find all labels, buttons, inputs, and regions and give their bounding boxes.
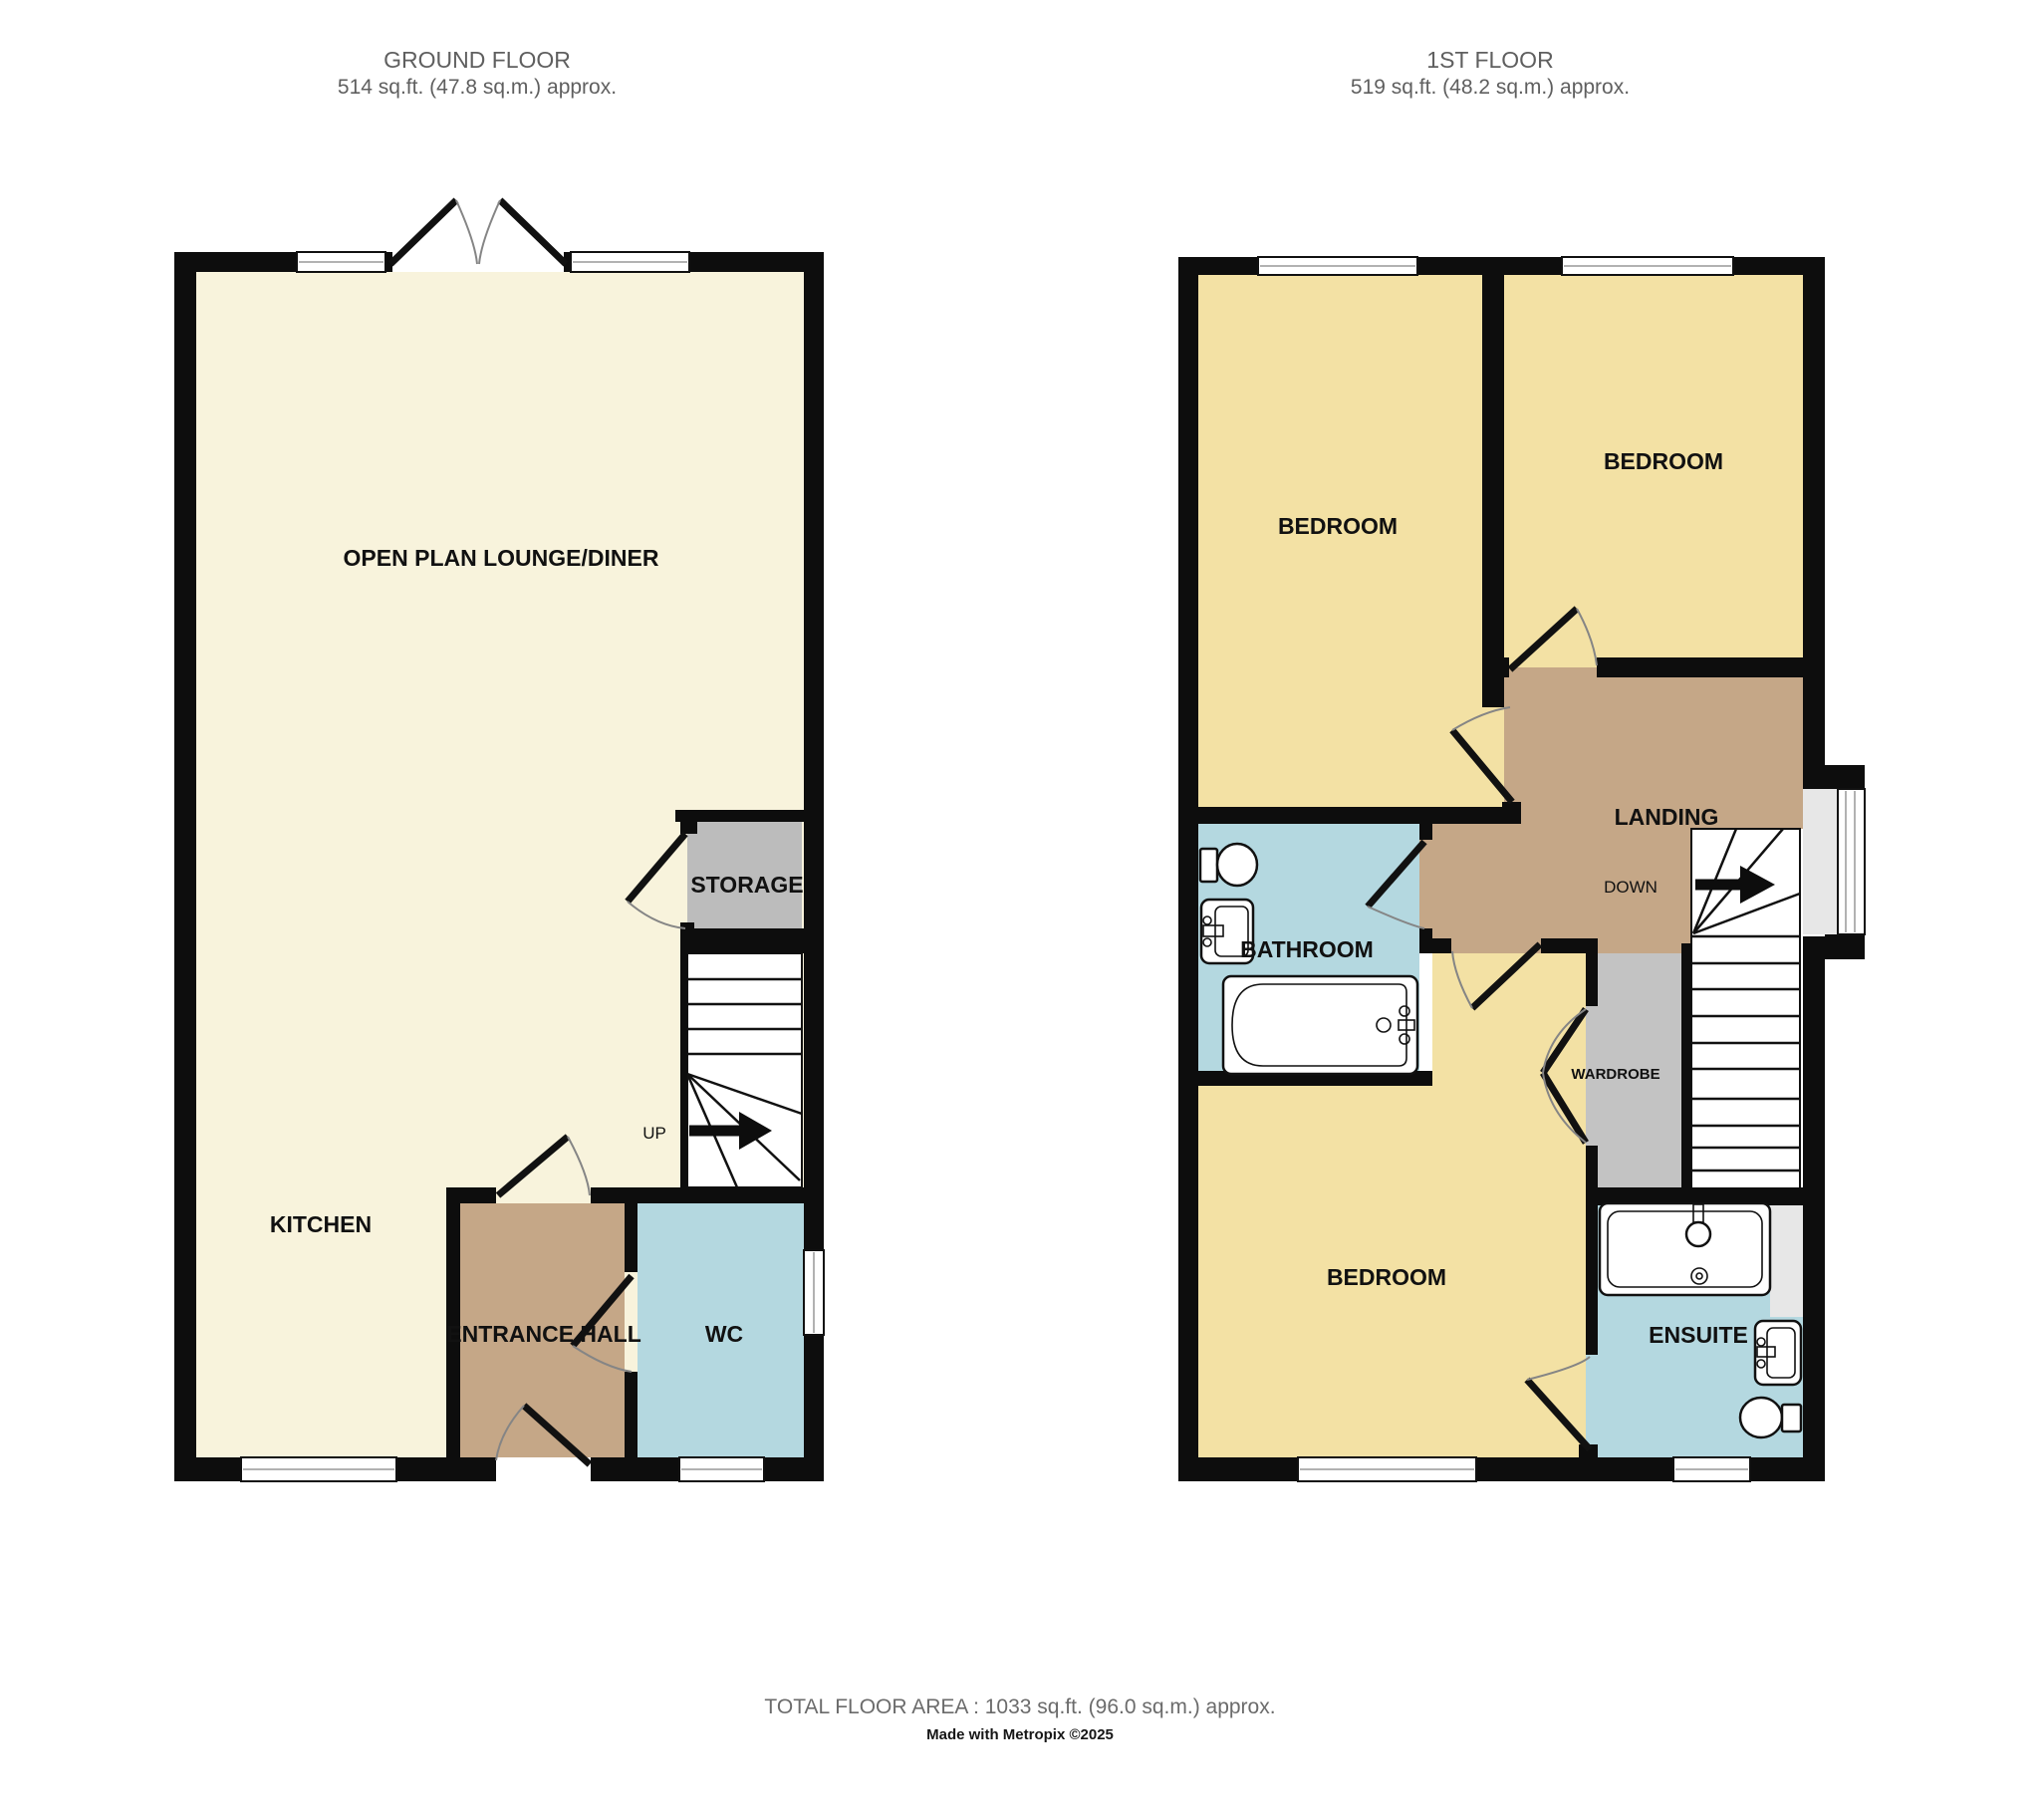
window-icon xyxy=(1258,257,1417,275)
total-floor-area: TOTAL FLOOR AREA : 1033 sq.ft. (96.0 sq.… xyxy=(764,1695,1275,1718)
room-label-entrance-hall: ENTRANCE HALL xyxy=(446,1321,641,1347)
shower-bath-icon xyxy=(1600,1203,1770,1295)
window-icon xyxy=(1673,1457,1750,1481)
toilet-icon xyxy=(1200,844,1257,886)
window-icon xyxy=(804,1250,824,1335)
room-label-kitchen: KITCHEN xyxy=(270,1211,372,1237)
toilet-icon xyxy=(1740,1398,1801,1437)
window-icon xyxy=(1562,257,1733,275)
room-label-bedroom-left: BEDROOM xyxy=(1278,513,1398,539)
floorplan-drawing: OPEN PLAN LOUNGE/DINER KITCHEN ENTRANCE … xyxy=(0,0,2040,1820)
first-floor-plan: BEDROOM BEDROOM BEDROOM BATHROOM LANDING… xyxy=(1178,257,1865,1481)
window-icon xyxy=(297,252,385,272)
first-floor-area: 519 sq.ft. (48.2 sq.m.) approx. xyxy=(1351,76,1630,99)
landing-bay-sill xyxy=(1803,789,1838,934)
stairs-up-label: UP xyxy=(642,1124,666,1143)
window-icon xyxy=(241,1457,396,1481)
bathroom-doorway xyxy=(1419,840,1432,928)
room-label-storage: STORAGE xyxy=(690,872,803,898)
room-label-bedroom-bottom: BEDROOM xyxy=(1327,1264,1446,1290)
room-label-bedroom-right: BEDROOM xyxy=(1604,448,1723,474)
room-label-lounge: OPEN PLAN LOUNGE/DINER xyxy=(344,545,659,571)
room-label-bathroom: BATHROOM xyxy=(1240,936,1374,962)
metropix-credit: Made with Metropix ©2025 xyxy=(926,1726,1114,1743)
window-icon xyxy=(679,1457,764,1481)
room-label-ensuite: ENSUITE xyxy=(1649,1322,1748,1348)
ground-staircase xyxy=(687,953,802,1187)
ensuite-doorway xyxy=(1586,1355,1598,1451)
window-icon xyxy=(571,252,689,272)
room-label-landing: LANDING xyxy=(1615,804,1719,830)
ground-floor-area: 514 sq.ft. (47.8 sq.m.) approx. xyxy=(338,76,617,99)
room-label-wc: WC xyxy=(705,1321,743,1347)
first-floor-staircase xyxy=(1691,829,1800,1192)
window-icon xyxy=(1298,1457,1476,1481)
bathtub-icon xyxy=(1223,976,1417,1074)
stairs-down-label: DOWN xyxy=(1604,878,1657,897)
ground-floor-plan: OPEN PLAN LOUNGE/DINER KITCHEN ENTRANCE … xyxy=(174,200,824,1481)
room-label-wardrobe: WARDROBE xyxy=(1571,1066,1659,1083)
ground-floor-title: GROUND FLOOR xyxy=(383,47,571,73)
sink-icon xyxy=(1755,1321,1801,1385)
ensuite-shower-sill xyxy=(1770,1203,1803,1317)
french-doors xyxy=(390,200,566,264)
floorplan-page: OPEN PLAN LOUNGE/DINER KITCHEN ENTRANCE … xyxy=(0,0,2040,1820)
window-icon xyxy=(1838,789,1865,934)
first-floor-title: 1ST FLOOR xyxy=(1426,47,1553,73)
